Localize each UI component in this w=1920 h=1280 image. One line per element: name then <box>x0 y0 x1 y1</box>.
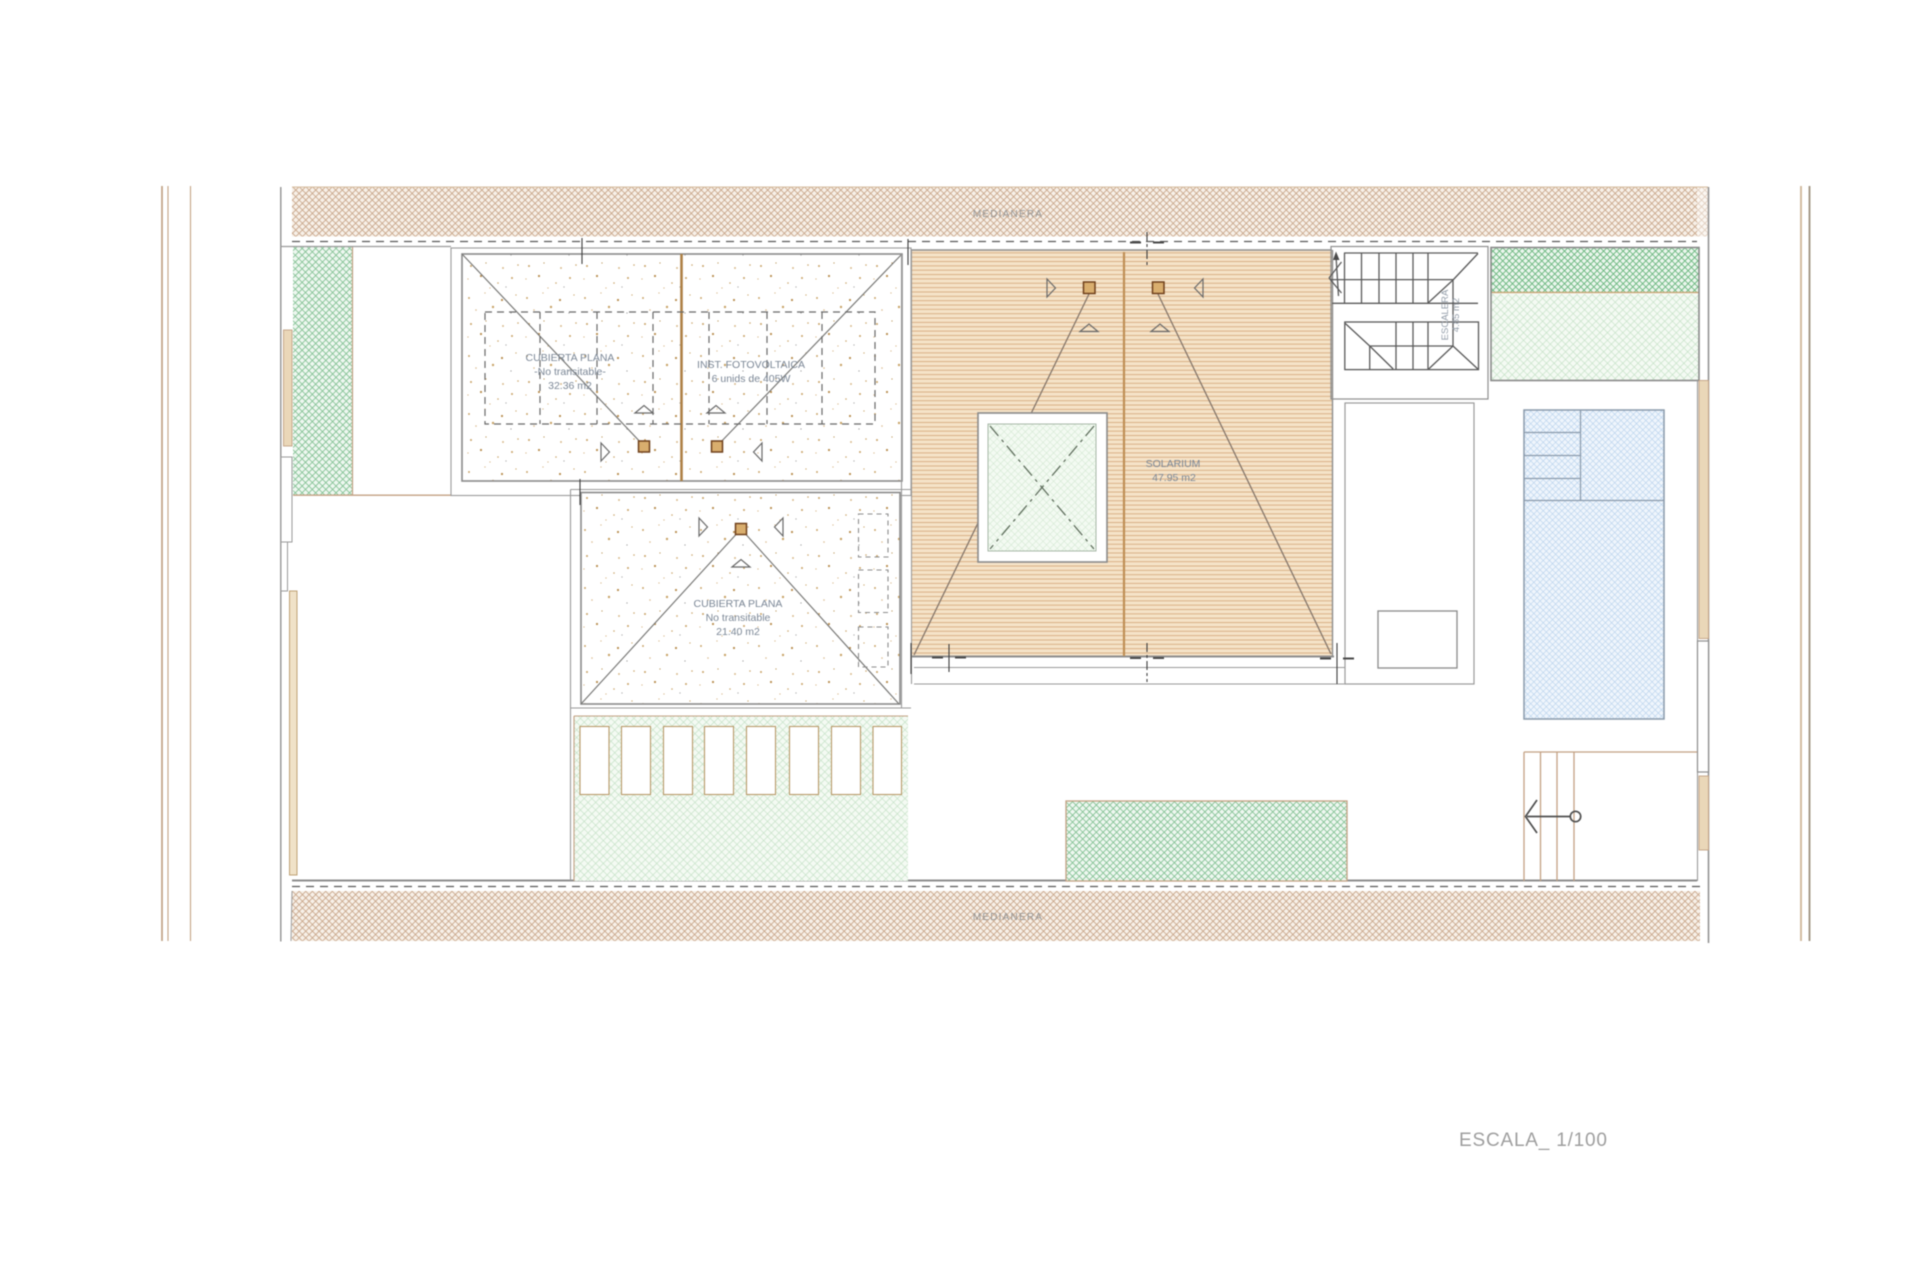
svg-text:32.36 m2: 32.36 m2 <box>548 380 592 392</box>
svg-text:47.95 m2: 47.95 m2 <box>1152 472 1196 484</box>
svg-text:MEDIANERA: MEDIANERA <box>973 209 1043 220</box>
svg-text:ESCALA_ 1/100: ESCALA_ 1/100 <box>1459 1130 1608 1151</box>
svg-text:-No transitable-: -No transitable- <box>534 366 606 378</box>
svg-text:SOLARIUM: SOLARIUM <box>1146 458 1201 470</box>
svg-text:ESCALERA: ESCALERA <box>1440 289 1451 340</box>
svg-text:4.85 m2: 4.85 m2 <box>1451 298 1462 332</box>
svg-text:21.40 m2: 21.40 m2 <box>716 626 760 638</box>
svg-text:INST. FOTOVOLTAICA: INST. FOTOVOLTAICA <box>697 359 805 371</box>
svg-text:MEDIANERA: MEDIANERA <box>973 912 1043 923</box>
svg-text:CUBIERTA PLANA: CUBIERTA PLANA <box>526 352 615 364</box>
svg-text:No transitable: No transitable <box>706 612 771 624</box>
svg-text:6 unids de 405W: 6 unids de 405W <box>712 373 791 385</box>
svg-text:CUBIERTA PLANA: CUBIERTA PLANA <box>694 598 783 610</box>
